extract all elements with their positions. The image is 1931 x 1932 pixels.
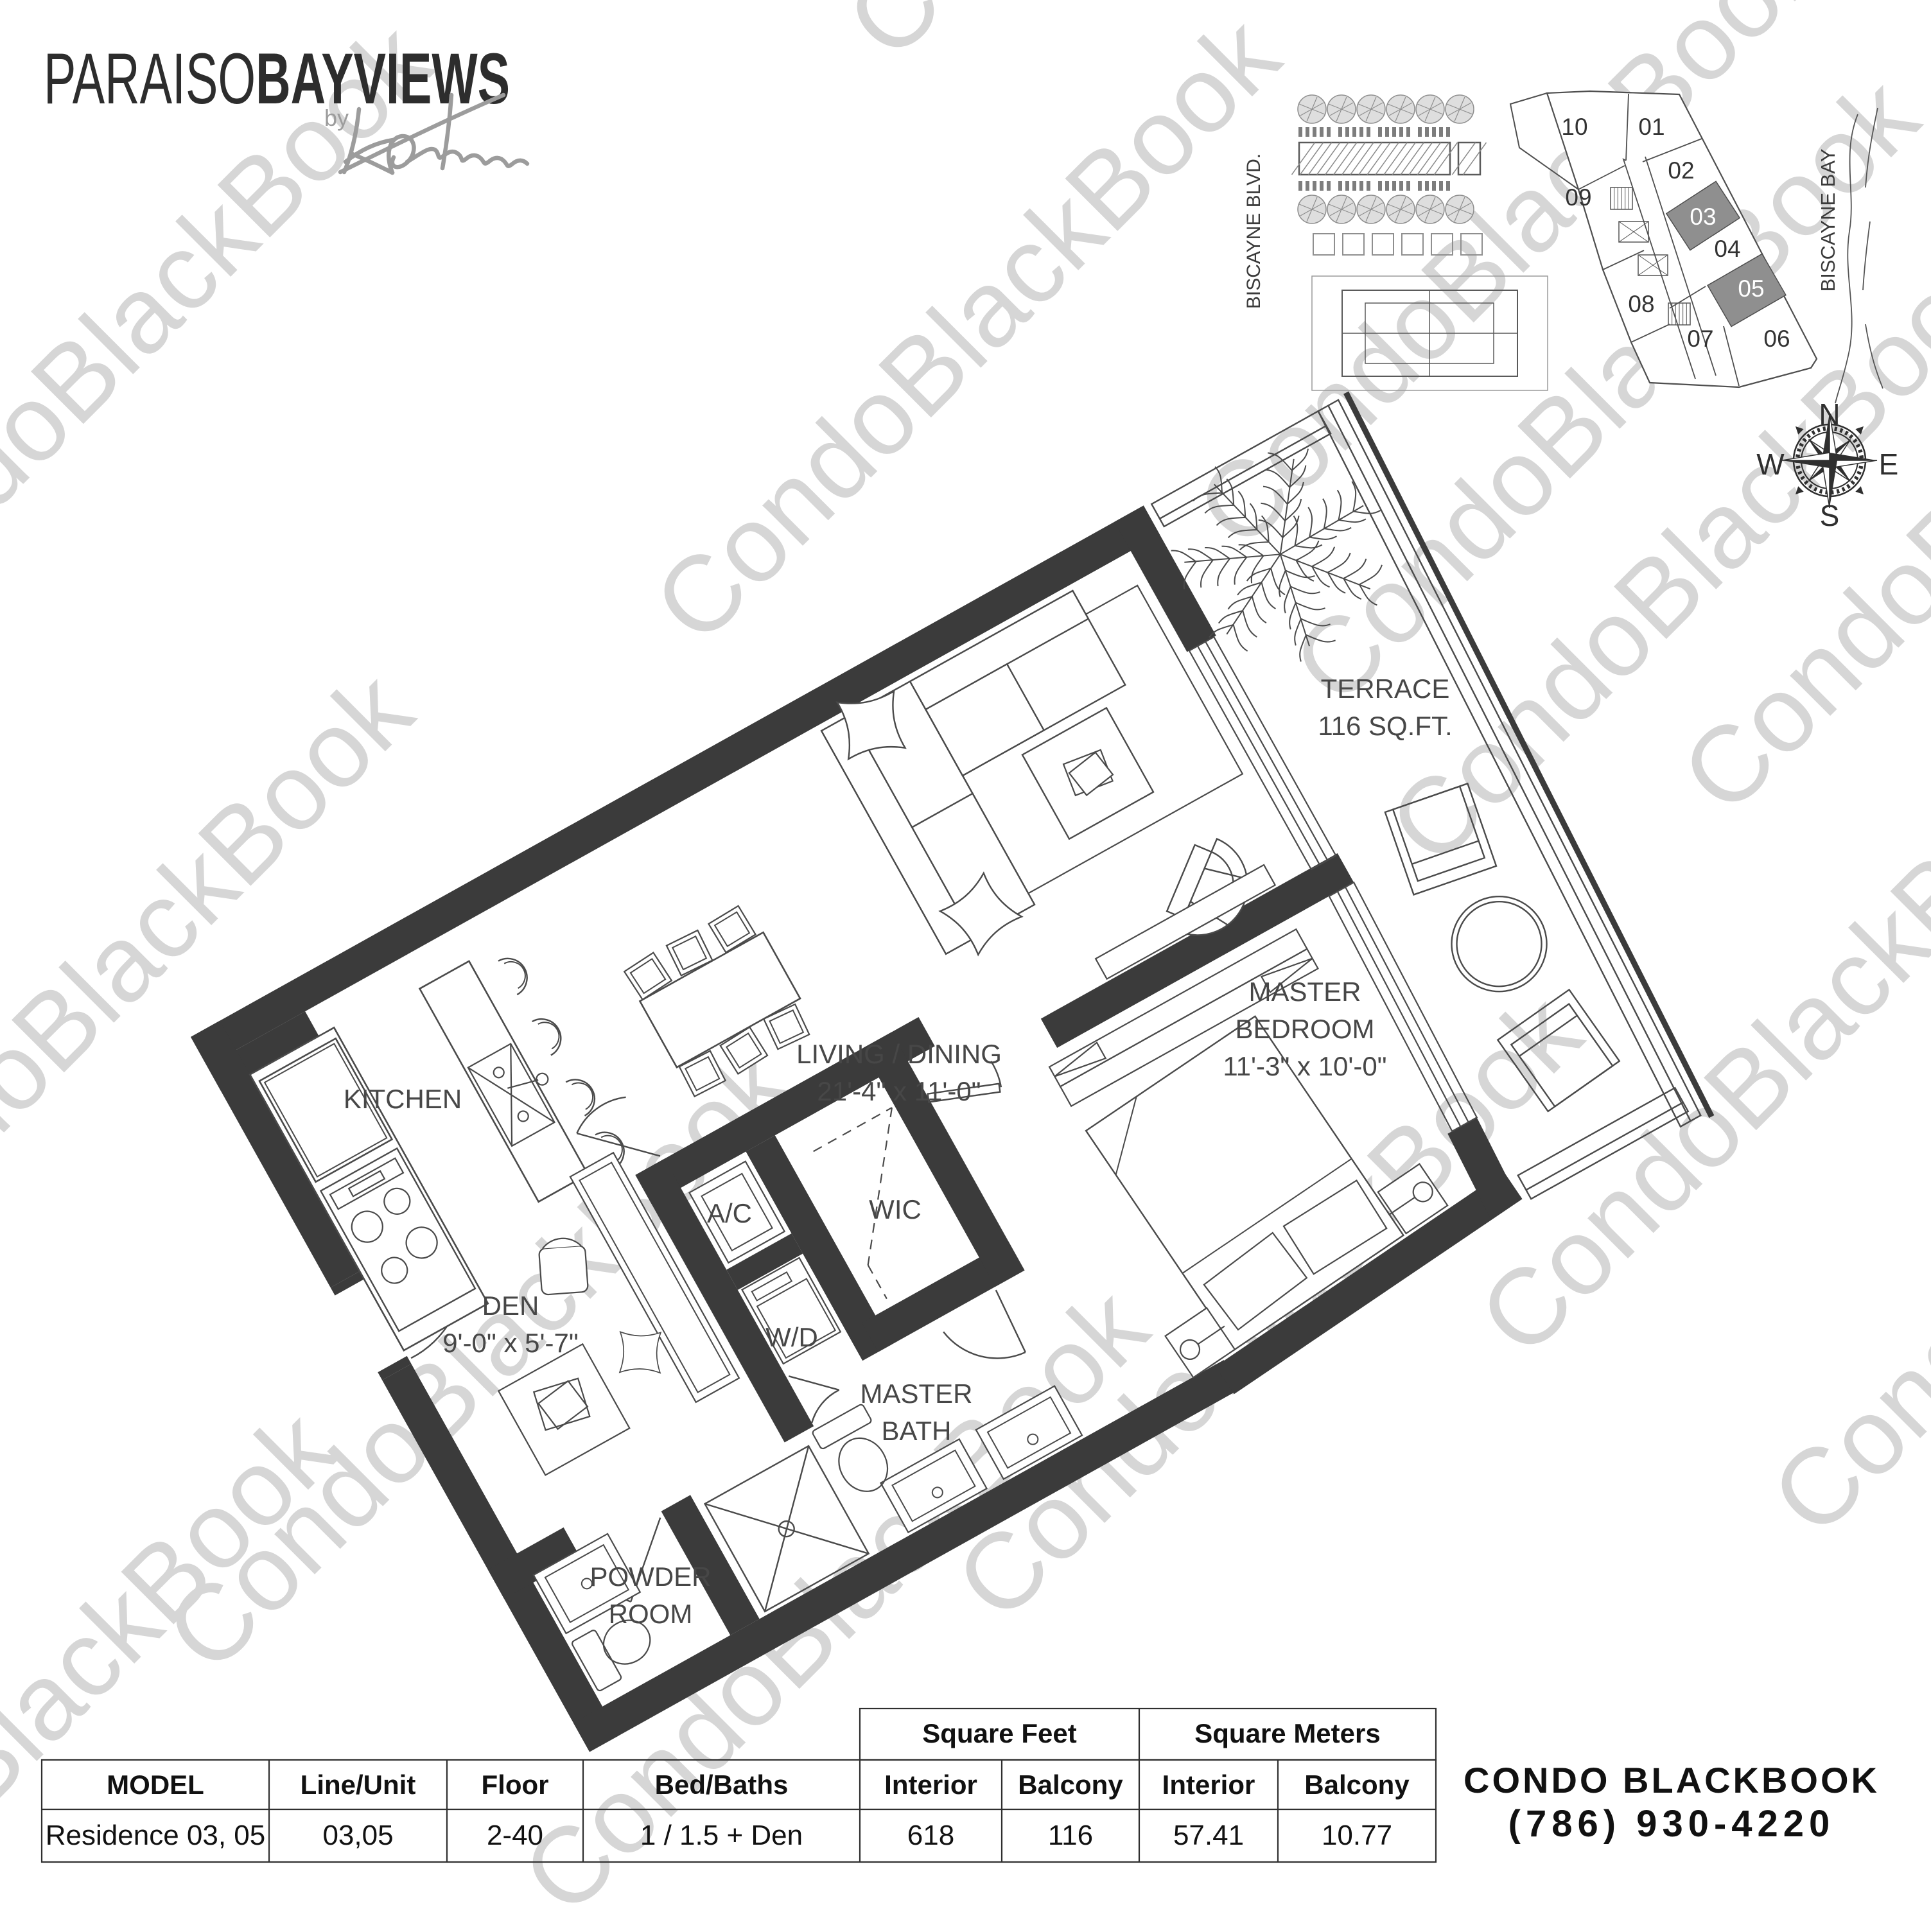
svg-text:Balcony: Balcony [1018, 1770, 1123, 1800]
svg-text:BISCAYNE BLVD.: BISCAYNE BLVD. [1243, 153, 1264, 309]
svg-text:Interior: Interior [884, 1770, 977, 1800]
svg-text:Square Meters: Square Meters [1194, 1718, 1380, 1748]
svg-text:06: 06 [1763, 326, 1790, 352]
svg-text:KITCHEN: KITCHEN [344, 1084, 462, 1114]
svg-text:02: 02 [1668, 157, 1694, 184]
svg-text:01: 01 [1638, 114, 1665, 140]
svg-text:Floor: Floor [482, 1770, 549, 1800]
svg-text:08: 08 [1628, 291, 1654, 317]
svg-text:Balcony: Balcony [1304, 1770, 1410, 1800]
svg-text:BISCAYNE BAY: BISCAYNE BAY [1817, 149, 1839, 292]
svg-text:MASTER: MASTER [1248, 977, 1361, 1007]
svg-text:TERRACE: TERRACE [1321, 674, 1450, 704]
svg-text:E: E [1879, 448, 1899, 481]
svg-text:LIVING / DINING: LIVING / DINING [796, 1039, 1002, 1069]
svg-text:Interior: Interior [1162, 1770, 1255, 1800]
svg-text:116 SQ.FT.: 116 SQ.FT. [1318, 711, 1452, 741]
svg-text:1 / 1.5 + Den: 1 / 1.5 + Den [640, 1820, 803, 1851]
svg-text:09: 09 [1565, 184, 1591, 211]
svg-text:by: by [324, 105, 349, 131]
svg-text:N: N [1819, 397, 1840, 431]
svg-text:07: 07 [1687, 326, 1713, 352]
svg-text:10: 10 [1561, 114, 1587, 140]
svg-text:WIC: WIC [869, 1194, 922, 1224]
svg-text:(786) 930-4220: (786) 930-4220 [1508, 1803, 1835, 1845]
svg-text:21'-4" x 11'-0": 21'-4" x 11'-0" [817, 1076, 981, 1106]
svg-text:2-40: 2-40 [487, 1820, 543, 1851]
svg-text:Line/Unit: Line/Unit [301, 1770, 416, 1800]
svg-text:CONDO BLACKBOOK: CONDO BLACKBOOK [1464, 1760, 1880, 1800]
svg-text:Square Feet: Square Feet [922, 1718, 1076, 1748]
svg-text:A/C: A/C [707, 1198, 752, 1228]
svg-text:BATH: BATH [882, 1416, 952, 1446]
svg-text:9'-0" x 5'-7": 9'-0" x 5'-7" [442, 1328, 579, 1358]
svg-text:W/D: W/D [765, 1322, 818, 1352]
svg-text:BEDROOM: BEDROOM [1235, 1014, 1374, 1044]
svg-text:PARAISOBAYVIEWS: PARAISOBAYVIEWS [44, 39, 510, 119]
svg-text:W: W [1756, 448, 1785, 481]
svg-text:ROOM: ROOM [609, 1599, 693, 1629]
svg-text:MASTER: MASTER [860, 1379, 972, 1409]
svg-text:MODEL: MODEL [107, 1770, 204, 1800]
svg-text:DEN: DEN [482, 1291, 539, 1321]
svg-text:Bed/Baths: Bed/Baths [655, 1770, 789, 1800]
svg-text:03: 03 [1690, 204, 1716, 230]
svg-text:10.77: 10.77 [1322, 1820, 1392, 1851]
svg-text:POWDER: POWDER [590, 1562, 712, 1592]
svg-text:03,05: 03,05 [322, 1820, 393, 1851]
svg-text:Residence 03, 05: Residence 03, 05 [46, 1820, 265, 1851]
svg-text:05: 05 [1738, 275, 1764, 302]
svg-text:11'-3" x 10'-0": 11'-3" x 10'-0" [1223, 1051, 1386, 1081]
svg-text:04: 04 [1714, 236, 1740, 262]
svg-text:57.41: 57.41 [1173, 1820, 1244, 1851]
svg-text:S: S [1820, 499, 1840, 532]
svg-text:116: 116 [1048, 1820, 1093, 1851]
svg-text:618: 618 [907, 1820, 954, 1851]
